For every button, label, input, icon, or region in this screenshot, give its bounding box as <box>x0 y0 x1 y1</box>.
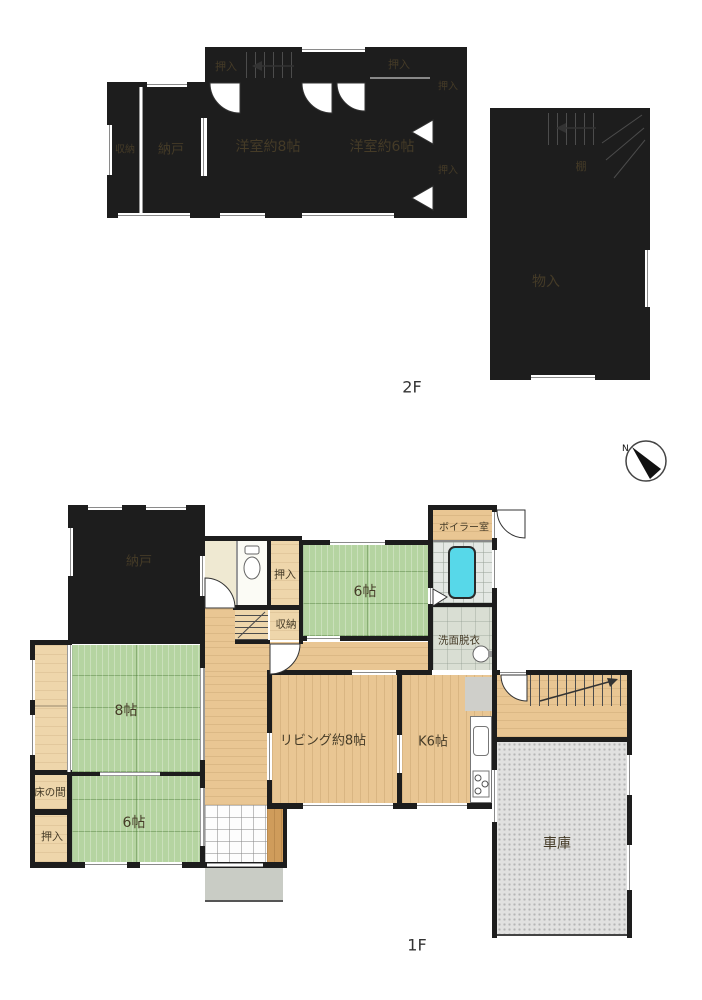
window <box>68 528 73 576</box>
wall <box>330 83 336 218</box>
window <box>302 47 365 52</box>
floor-plan-canvas: N 収納 納戸 押入 洋室約8帖 洋室約6帖 押入 押入 押入 物入 棚 2F … <box>0 0 702 1000</box>
wall <box>598 145 602 186</box>
window <box>302 213 394 218</box>
room-label-1f-washitsu8: 8帖 <box>115 700 138 720</box>
compass-needle <box>632 447 661 479</box>
door-opening <box>352 670 396 675</box>
room-label-2f-monoire: 物入 <box>532 271 560 291</box>
window <box>146 505 186 510</box>
veranda <box>35 645 67 772</box>
room-label-1f-tokonoma: 床の間 <box>34 785 66 800</box>
hall-corridor <box>205 672 267 805</box>
wall-thin <box>236 541 238 608</box>
door-opening <box>307 636 340 641</box>
genkan-step <box>267 805 283 865</box>
fridge-space <box>465 677 492 711</box>
window <box>330 540 385 545</box>
wall <box>428 603 497 607</box>
bathtub <box>448 546 476 599</box>
toilet-room <box>238 541 268 608</box>
window <box>627 755 632 795</box>
room-label-2f-shunou: 収納 <box>115 141 135 156</box>
window <box>645 250 650 307</box>
room-label-1f-senmen: 洗面脱衣 <box>438 633 480 648</box>
wall <box>299 608 303 644</box>
sliding-door <box>200 668 205 760</box>
door-opening <box>397 735 402 773</box>
wall <box>30 640 72 645</box>
wall <box>497 737 632 742</box>
kitchen-sink <box>473 726 489 756</box>
wall <box>299 541 303 608</box>
room-label-1f-nando: 納戸 <box>126 551 152 570</box>
wall <box>67 770 72 866</box>
room-label-2f-oshiire-tl: 押入 <box>215 58 237 74</box>
door-opening <box>200 556 205 596</box>
room-label-1f-garage: 車庫 <box>543 833 571 853</box>
wall <box>428 505 497 510</box>
wall <box>30 809 72 815</box>
room-label-1f-washitsu6-lower: 6帖 <box>123 812 146 832</box>
window <box>107 125 112 175</box>
window <box>147 82 187 87</box>
window <box>30 660 35 700</box>
window <box>140 862 182 868</box>
window <box>88 505 122 510</box>
door-opening <box>428 588 433 604</box>
window <box>627 845 632 890</box>
closet-divider <box>370 77 430 79</box>
room-label-1f-shunou: 収納 <box>276 617 297 632</box>
room-label-2f-yoshitsu8: 洋室約8帖 <box>236 136 301 156</box>
room-label-1f-oshiire-left: 押入 <box>41 828 63 844</box>
garage-door-line <box>497 934 627 936</box>
wall <box>283 805 287 868</box>
sliding-door <box>200 788 205 846</box>
veranda-divider <box>35 705 67 707</box>
wall <box>267 541 271 608</box>
room-label-1f-living: リビング約8帖 <box>280 730 366 749</box>
shoji-door <box>67 645 71 772</box>
compass: N <box>622 441 666 481</box>
wall-thin <box>433 540 492 542</box>
window <box>30 715 35 755</box>
washroom-anteroom <box>205 541 236 608</box>
entrance-sliding-door <box>207 863 263 867</box>
window <box>85 862 127 868</box>
wall <box>30 770 72 775</box>
door-arc <box>497 510 525 538</box>
wall <box>598 182 645 186</box>
room-label-2f-oshiire-r1: 押入 <box>438 78 458 93</box>
compass-circle <box>626 441 666 481</box>
wall <box>267 670 432 675</box>
fusuma-door <box>100 772 160 776</box>
window <box>531 375 595 380</box>
room-label-2f-yoshitsu6: 洋室約6帖 <box>350 136 415 156</box>
genkan-tile <box>205 805 267 865</box>
room-label-2f-oshiire-closet: 押入 <box>388 56 410 72</box>
window <box>220 213 265 218</box>
hall <box>205 642 432 672</box>
window <box>492 550 497 588</box>
room-label-1f-washitsu6-upper: 6帖 <box>354 581 377 601</box>
stairs-2f-right <box>548 113 598 147</box>
wall <box>68 606 205 644</box>
room-label-1f-oshiire-center: 押入 <box>274 566 296 582</box>
room-label-1f-boiler: ボイラー室 <box>439 519 489 534</box>
window <box>492 770 497 822</box>
floor-label-2f: 2F <box>402 378 421 397</box>
wall <box>435 112 462 116</box>
door-opening <box>201 118 207 176</box>
wall <box>240 78 302 83</box>
compass-north-label: N <box>622 444 629 454</box>
sliding-door <box>139 87 143 213</box>
hall <box>205 608 235 642</box>
floor-label-1f: 1F <box>407 936 426 955</box>
stairs-1f-east <box>530 675 627 706</box>
door-opening <box>492 512 497 538</box>
room-label-2f-tana: 棚 <box>576 158 587 174</box>
window <box>118 213 190 218</box>
room-label-2f-nando: 納戸 <box>158 139 184 158</box>
room-label-1f-kitchen: K6帖 <box>418 731 448 750</box>
door-opening <box>267 733 272 780</box>
window <box>417 803 467 809</box>
room-label-2f-oshiire-r2: 押入 <box>438 162 458 177</box>
window <box>303 803 393 809</box>
stairs-1f <box>235 610 268 640</box>
wall <box>627 670 632 938</box>
stairs-2f <box>246 52 298 78</box>
entrance-porch <box>205 868 283 902</box>
wall <box>430 47 435 218</box>
door-opening <box>500 670 526 675</box>
wall <box>235 640 270 644</box>
wall <box>205 536 302 541</box>
wall <box>205 78 212 83</box>
wall <box>548 145 602 149</box>
